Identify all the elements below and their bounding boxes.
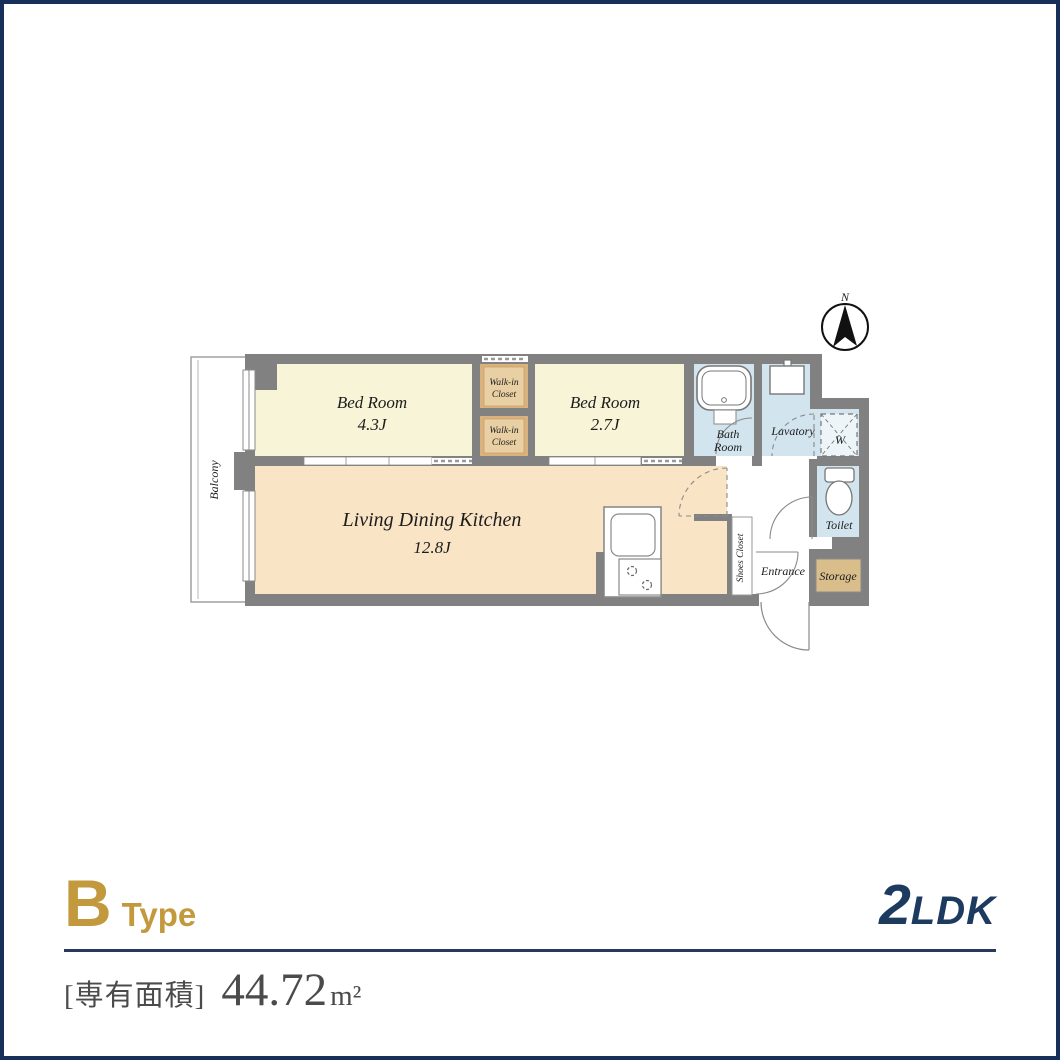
area-value: 44.72 bbox=[221, 967, 327, 1014]
wic2-label-line1: Walk-in bbox=[489, 426, 518, 436]
area-row: [専有面積] 44.72 m² bbox=[64, 967, 996, 1014]
wic1-label-line2: Closet bbox=[492, 390, 517, 400]
compass-icon: N bbox=[822, 290, 868, 350]
washer-label: W bbox=[835, 433, 846, 447]
bedroom2-size: 2.7J bbox=[591, 415, 621, 434]
north-label: N bbox=[840, 290, 850, 304]
bathroom-label-line1: Bath bbox=[717, 427, 740, 441]
layout-number: 2 bbox=[879, 877, 911, 934]
area-unit: m² bbox=[330, 980, 361, 1013]
area-label: [専有面積] bbox=[64, 972, 205, 1014]
layout-tag: 2 LDK bbox=[879, 877, 996, 936]
unit-type-word: Type bbox=[122, 898, 197, 931]
type-row: B Type 2 LDK bbox=[64, 870, 996, 936]
wic2-area bbox=[480, 416, 528, 456]
balcony-label: Balcony bbox=[207, 460, 221, 500]
bedroom2-label: Bed Room bbox=[570, 393, 640, 412]
storage-label: Storage bbox=[819, 569, 857, 583]
kitchen-icon bbox=[596, 507, 661, 597]
footer: B Type 2 LDK [専有面積] 44.72 m² bbox=[64, 870, 996, 1014]
wic2-label-line2: Closet bbox=[492, 438, 517, 448]
wic1-label-line1: Walk-in bbox=[489, 378, 518, 388]
ldk-size: 12.8J bbox=[413, 538, 452, 557]
floorplan-page: N Balcony bbox=[0, 0, 1060, 1060]
toilet-icon bbox=[825, 468, 854, 515]
bedroom1-label: Bed Room bbox=[337, 393, 407, 412]
bedroom1-size: 4.3J bbox=[358, 415, 388, 434]
shoes-closet-label: Shoes Closet bbox=[736, 533, 746, 582]
layout-letters: LDK bbox=[911, 891, 996, 931]
entrance-label: Entrance bbox=[760, 564, 806, 578]
bathroom-label-line2: Room bbox=[713, 440, 742, 454]
toilet-label: Toilet bbox=[826, 518, 854, 532]
floor-plan: N Balcony bbox=[4, 4, 1060, 864]
unit-type: B Type bbox=[64, 870, 196, 936]
lavatory-label: Lavatory bbox=[770, 424, 815, 438]
divider-line bbox=[64, 949, 996, 952]
unit-type-letter: B bbox=[64, 870, 113, 936]
ldk-label: Living Dining Kitchen bbox=[342, 509, 522, 531]
